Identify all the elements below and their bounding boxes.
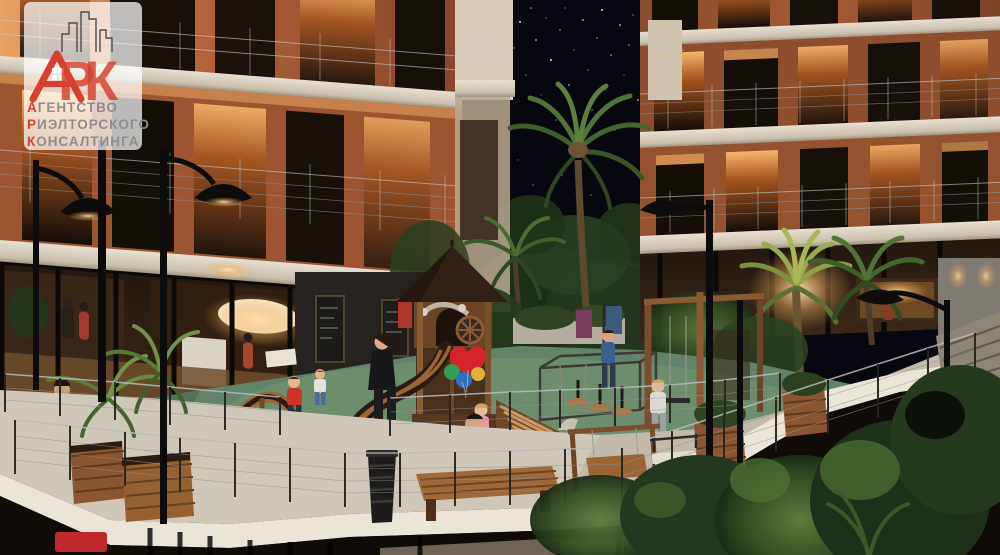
scene-svg: Р К АГЕНТСТВО РИЭЛТОРСКОГО КОНСАЛТИНГА (0, 0, 1000, 555)
watermark-line-3: КОНСАЛТИНГА (27, 134, 140, 149)
render-canvas: Р К АГЕНТСТВО РИЭЛТОРСКОГО КОНСАЛТИНГА (0, 0, 1000, 555)
watermark-logo: Р К АГЕНТСТВО РИЭЛТОРСКОГО КОНСАЛТИНГА (24, 2, 150, 150)
right-building-corner (648, 20, 684, 100)
red-bench (55, 532, 107, 552)
watermark-line-2: РИЭЛТОРСКОГО (27, 117, 150, 132)
right-floor-2 (640, 30, 1000, 132)
planter-box-2 (122, 452, 195, 522)
planter-box-1 (70, 441, 127, 504)
right-floor-3 (640, 132, 1000, 236)
storefront-column (98, 140, 106, 402)
watermark-line-1: АГЕНТСТВО (27, 100, 118, 115)
